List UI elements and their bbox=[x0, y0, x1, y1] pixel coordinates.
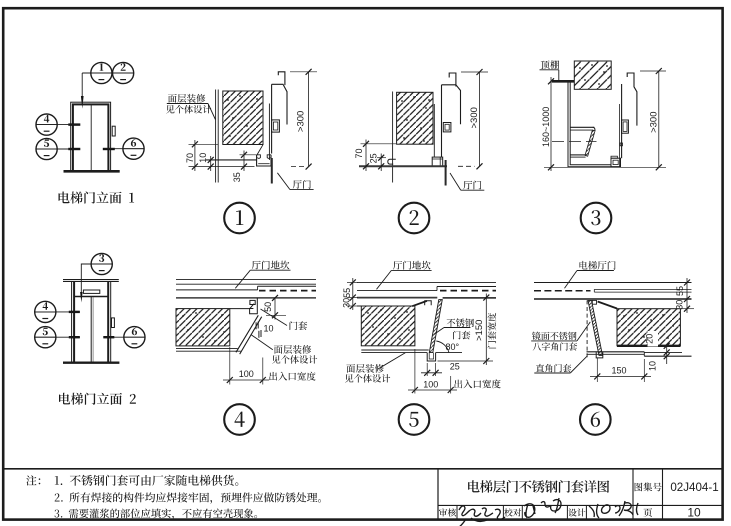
svg-text:10: 10 bbox=[648, 361, 658, 371]
svg-text:>150: >150 bbox=[474, 320, 485, 341]
svg-text:30: 30 bbox=[675, 300, 685, 310]
svg-text:150: 150 bbox=[611, 365, 626, 375]
svg-text:30: 30 bbox=[342, 298, 352, 308]
svg-text:70: 70 bbox=[185, 153, 195, 163]
svg-text:20: 20 bbox=[645, 334, 655, 344]
svg-text:70: 70 bbox=[354, 148, 364, 158]
svg-text:>300: >300 bbox=[648, 111, 659, 132]
svg-text:35: 35 bbox=[232, 172, 242, 182]
svg-text:100: 100 bbox=[423, 379, 438, 389]
svg-text:25: 25 bbox=[450, 362, 460, 372]
svg-text:50: 50 bbox=[263, 302, 273, 312]
svg-text:10: 10 bbox=[687, 506, 701, 520]
svg-text:>300: >300 bbox=[296, 111, 307, 132]
svg-text:>300: >300 bbox=[469, 107, 480, 128]
svg-text:02J404-1: 02J404-1 bbox=[670, 481, 718, 494]
svg-text:55: 55 bbox=[342, 288, 352, 298]
svg-text:100: 100 bbox=[239, 369, 254, 379]
svg-text:25: 25 bbox=[369, 153, 379, 163]
svg-text:10: 10 bbox=[263, 324, 273, 334]
svg-text:160~1000: 160~1000 bbox=[541, 107, 551, 147]
svg-text:55: 55 bbox=[675, 286, 685, 296]
svg-text:80°: 80° bbox=[445, 342, 459, 352]
svg-text:10: 10 bbox=[198, 153, 208, 163]
